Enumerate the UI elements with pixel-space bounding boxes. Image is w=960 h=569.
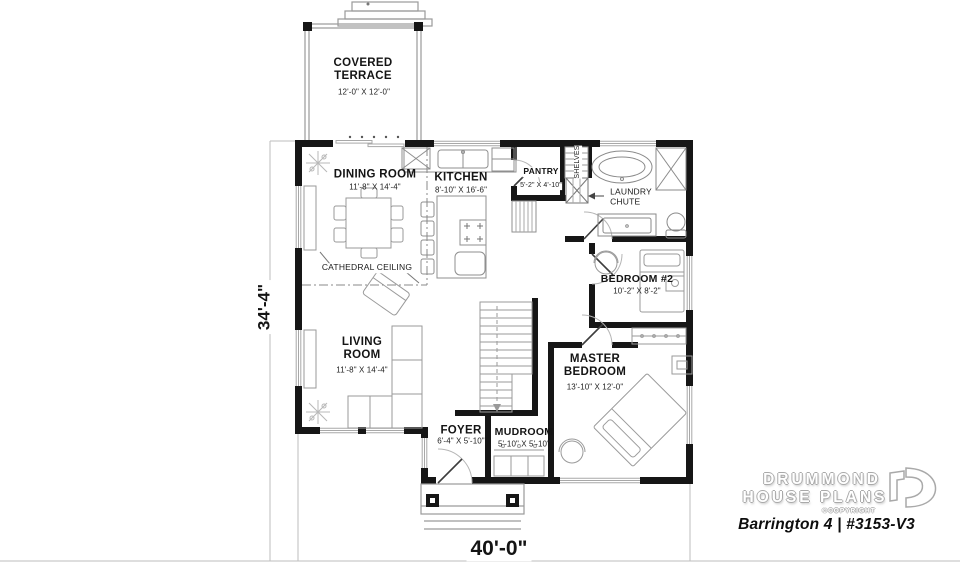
- plan-title: Barrington 4 | #3153-V3: [738, 516, 915, 534]
- room-label-living: LIVING ROOM: [342, 336, 382, 362]
- brand-copyright: ©COPYRIGHT: [822, 508, 875, 515]
- room-size-living: 11'-8" X 14'-4": [336, 367, 387, 376]
- overall-width-dimension: 40'-0": [467, 537, 532, 561]
- laundry-chute-label: LAUNDRY CHUTE: [610, 187, 652, 206]
- room-size-terrace: 12'-0" X 12'-0": [338, 89, 390, 98]
- porch: [421, 484, 524, 529]
- room-label-bedroom2: BEDROOM #2: [601, 274, 673, 286]
- room-size-dining: 11'-8" X 14'-4": [349, 184, 400, 193]
- room-label-pantry: PANTRY: [522, 167, 559, 177]
- cathedral-ceiling-label: CATHEDRAL CEILING: [320, 263, 414, 273]
- room-size-foyer: 6'-4" X 5'-10": [437, 438, 485, 447]
- kitchen-fixtures: [402, 147, 536, 278]
- plant-icons: [306, 151, 330, 424]
- room-size-master: 13'-10" X 12'-0": [567, 384, 624, 393]
- stairs: [480, 302, 532, 412]
- brand-name-line2: HOUSE PLANS: [743, 489, 888, 507]
- overall-depth-dimension: 34'-4": [254, 280, 273, 334]
- room-size-kitchen: 8'-10" X 16'-6": [435, 187, 487, 196]
- room-label-foyer: FOYER: [440, 425, 481, 438]
- room-label-kitchen: KITCHEN: [434, 172, 487, 185]
- shelves-label: SHELVES: [574, 145, 582, 178]
- drummond-logo-icon: [890, 468, 936, 507]
- room-label-mudroom: MUDROOM: [495, 427, 554, 439]
- room-size-bedroom2: 10'-2" X 8'-2": [613, 288, 661, 297]
- floor-plan-page: COVERED TERRACE 12'-0" X 12'-0" DINING R…: [0, 0, 960, 569]
- room-label-master: MASTER BEDROOM: [564, 353, 626, 379]
- room-label-dining: DINING ROOM: [334, 169, 417, 182]
- laundry-chute-box: [566, 178, 604, 203]
- room-label-terrace: COVERED TERRACE: [334, 57, 393, 83]
- room-size-pantry: 5'-2" X 4'-10": [520, 182, 562, 190]
- brand-name-line1: DRUMMOND: [763, 471, 881, 489]
- dining-furniture: [304, 186, 403, 258]
- room-size-mudroom: 5'-10" X 5'-10": [498, 441, 550, 450]
